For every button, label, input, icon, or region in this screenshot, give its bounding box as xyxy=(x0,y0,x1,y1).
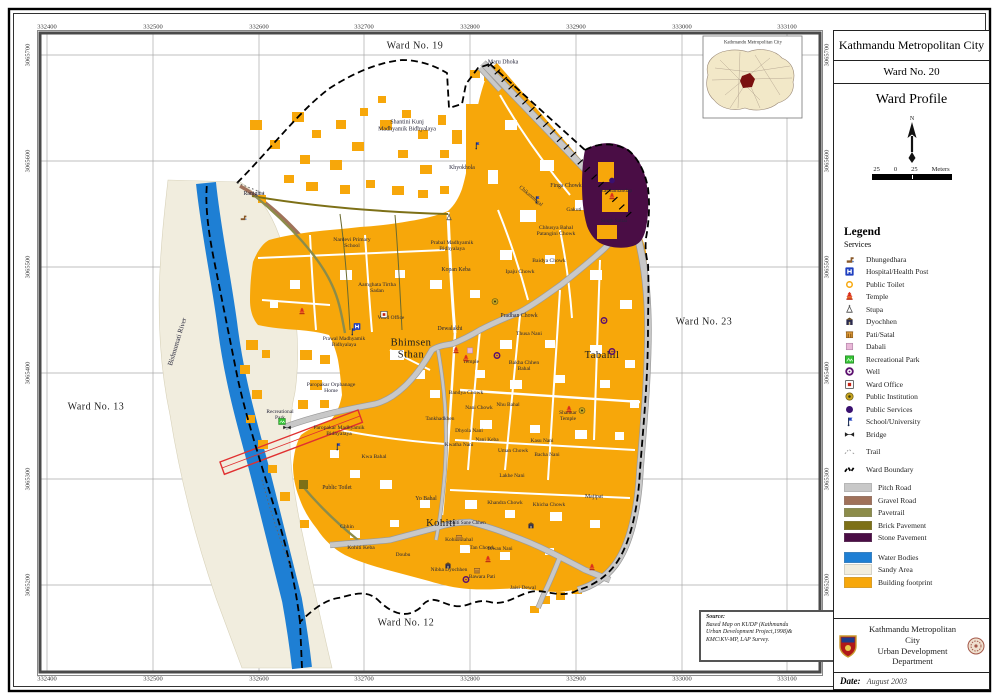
org-line2: Urban Development Department xyxy=(862,646,963,667)
legend-road-swatch: Gravel Road xyxy=(844,494,989,507)
legend-area-swatch: Building footprint xyxy=(844,576,989,589)
legend-label: Public Toilet xyxy=(866,280,904,289)
school-icon xyxy=(844,416,855,427)
legend-item-pati: Pati/Satal xyxy=(844,328,989,341)
legend-label: Sandy Area xyxy=(878,565,913,574)
side-panel: Kathmandu Metropolitan City Ward No. 20 … xyxy=(833,30,990,690)
source-line: Urban Development Project,1998)& xyxy=(706,629,832,637)
map-title: Kathmandu Metropolitan City xyxy=(834,31,989,61)
kmc-crest-icon xyxy=(838,634,858,658)
legend-item-dabali: Dabali xyxy=(844,341,989,354)
legend-road-swatch: Pitch Road xyxy=(844,482,989,495)
legend-item-dhungedhara: Dhungedhara xyxy=(844,253,989,266)
services-icon xyxy=(844,404,855,415)
org-box: Kathmandu Metropolitan City Urban Develo… xyxy=(834,618,989,672)
area-color-swatch xyxy=(844,564,872,575)
legend-label: Pitch Road xyxy=(878,483,911,492)
date-row: Date: August 2003 xyxy=(834,672,989,689)
legend-label: School/University xyxy=(866,417,921,426)
legend-road-swatch: Pavetrail xyxy=(844,507,989,520)
road-color-swatch xyxy=(844,533,872,542)
north-arrow-icon: N xyxy=(897,112,927,164)
area-color-swatch xyxy=(844,577,872,588)
legend-label: Water Bodies xyxy=(878,553,918,562)
legend-label: Public Institution xyxy=(866,392,918,401)
source-line: KMC\KV-MP, LAP Survey. xyxy=(706,637,832,645)
legend-label: Recreational Park xyxy=(866,355,920,364)
legend-areas-list: Water BodiesSandy AreaBuilding footprint xyxy=(844,551,989,589)
legend-item-well: Well xyxy=(844,366,989,379)
ward-profile-title: Ward Profile xyxy=(834,84,989,108)
legend-subheading: Services xyxy=(844,240,989,249)
road-color-swatch xyxy=(844,496,872,505)
org-line1: Kathmandu Metropolitan City xyxy=(862,624,963,645)
ward-office-icon xyxy=(844,379,855,390)
well-icon xyxy=(844,366,855,377)
legend-item-school: School/University xyxy=(844,416,989,429)
legend-label: Dabali xyxy=(866,342,886,351)
road-color-swatch xyxy=(844,521,872,530)
department-seal-icon xyxy=(967,637,985,655)
legend-label: Ward Office xyxy=(866,380,903,389)
legend-item-hospital: Hospital/Health Post xyxy=(844,266,989,279)
legend-item-toilet: Public Toilet xyxy=(844,278,989,291)
trail-icon xyxy=(844,446,855,457)
dhungedhara-icon xyxy=(844,254,855,265)
dabali-icon xyxy=(844,341,855,352)
legend-label: Trail xyxy=(866,447,880,456)
legend-label: Hospital/Health Post xyxy=(866,267,928,276)
legend-label: Bridge xyxy=(866,430,886,439)
ward-map-sheet: 3324003324003325003325003326003326003327… xyxy=(0,0,999,700)
panel-bottom: Kathmandu Metropolitan City Urban Develo… xyxy=(834,618,989,689)
temple-icon xyxy=(844,291,855,302)
legend-item-institution: Public Institution xyxy=(844,391,989,404)
legend-item-bridge: Bridge xyxy=(844,428,989,441)
legend-label: Gravel Road xyxy=(878,496,916,505)
source-heading: Source: xyxy=(706,614,832,622)
area-color-swatch xyxy=(844,552,872,563)
date-value: August 2003 xyxy=(867,677,907,686)
dyochhen-icon xyxy=(844,316,855,327)
legend-label: Stone Pavement xyxy=(878,533,927,542)
legend-road-swatch: Stone Pavement xyxy=(844,532,989,545)
pati-icon xyxy=(844,329,855,340)
legend-services-list: DhungedharaHospital/Health PostPublic To… xyxy=(844,253,989,458)
hospital-icon xyxy=(844,266,855,277)
legend-label: Well xyxy=(866,367,880,376)
legend-road-swatch: Brick Pavement xyxy=(844,519,989,532)
legend-area-swatch: Water Bodies xyxy=(844,551,989,564)
inset-map-title: Kathmandu Metropolitan City xyxy=(724,41,782,46)
legend-item-park: Recreational Park xyxy=(844,353,989,366)
legend-item-services: Public Services xyxy=(844,403,989,416)
legend-item-temple: Temple xyxy=(844,291,989,304)
ward-number: Ward No. 20 xyxy=(834,61,989,84)
legend-label: Pavetrail xyxy=(878,508,905,517)
legend-area-swatch: Sandy Area xyxy=(844,564,989,577)
scale-unit: Meters xyxy=(932,166,950,173)
institution-icon xyxy=(844,391,855,402)
legend-label: Building footprint xyxy=(878,578,932,587)
legend-item-ward-office: Ward Office xyxy=(844,378,989,391)
toilet-icon xyxy=(844,279,855,290)
stupa-icon xyxy=(844,304,855,315)
date-label: Date: xyxy=(840,676,861,686)
north-letter: N xyxy=(909,116,914,122)
scale-bar: 25025Meters xyxy=(834,166,989,180)
legend-label: Public Services xyxy=(866,405,912,414)
scale-zero: 0 xyxy=(894,166,897,173)
legend-label: Ward Boundary xyxy=(866,465,914,474)
legend-label: Temple xyxy=(866,292,888,301)
legend-label: Stupa xyxy=(866,305,883,314)
legend-label: Dyochhen xyxy=(866,317,897,326)
legend-item-boundary: Ward Boundary xyxy=(844,463,989,476)
legend-item-dyochhen: Dyochhen xyxy=(844,316,989,329)
road-color-swatch xyxy=(844,508,872,517)
legend-boundary-row: Ward Boundary xyxy=(844,463,989,476)
legend-label: Pati/Satal xyxy=(866,330,895,339)
source-box: Source: Based Map on KUDP (Kathmandu Urb… xyxy=(699,610,839,662)
legend-item-trail: Trail xyxy=(844,446,989,459)
legend: Legend Services DhungedharaHospital/Heal… xyxy=(844,226,989,589)
scale-bar-graphic xyxy=(872,174,952,180)
road-color-swatch xyxy=(844,483,872,492)
legend-label: Dhungedhara xyxy=(866,255,906,264)
scale-left: 25 xyxy=(873,166,880,173)
bridge-icon xyxy=(844,429,855,440)
legend-roads-list: Pitch RoadGravel RoadPavetrailBrick Pave… xyxy=(844,482,989,545)
scale-right: 25 xyxy=(911,166,918,173)
legend-label: Brick Pavement xyxy=(878,521,926,530)
legend-heading: Legend xyxy=(844,226,989,238)
boundary-icon xyxy=(844,464,855,475)
park-icon xyxy=(844,354,855,365)
legend-item-stupa: Stupa xyxy=(844,303,989,316)
